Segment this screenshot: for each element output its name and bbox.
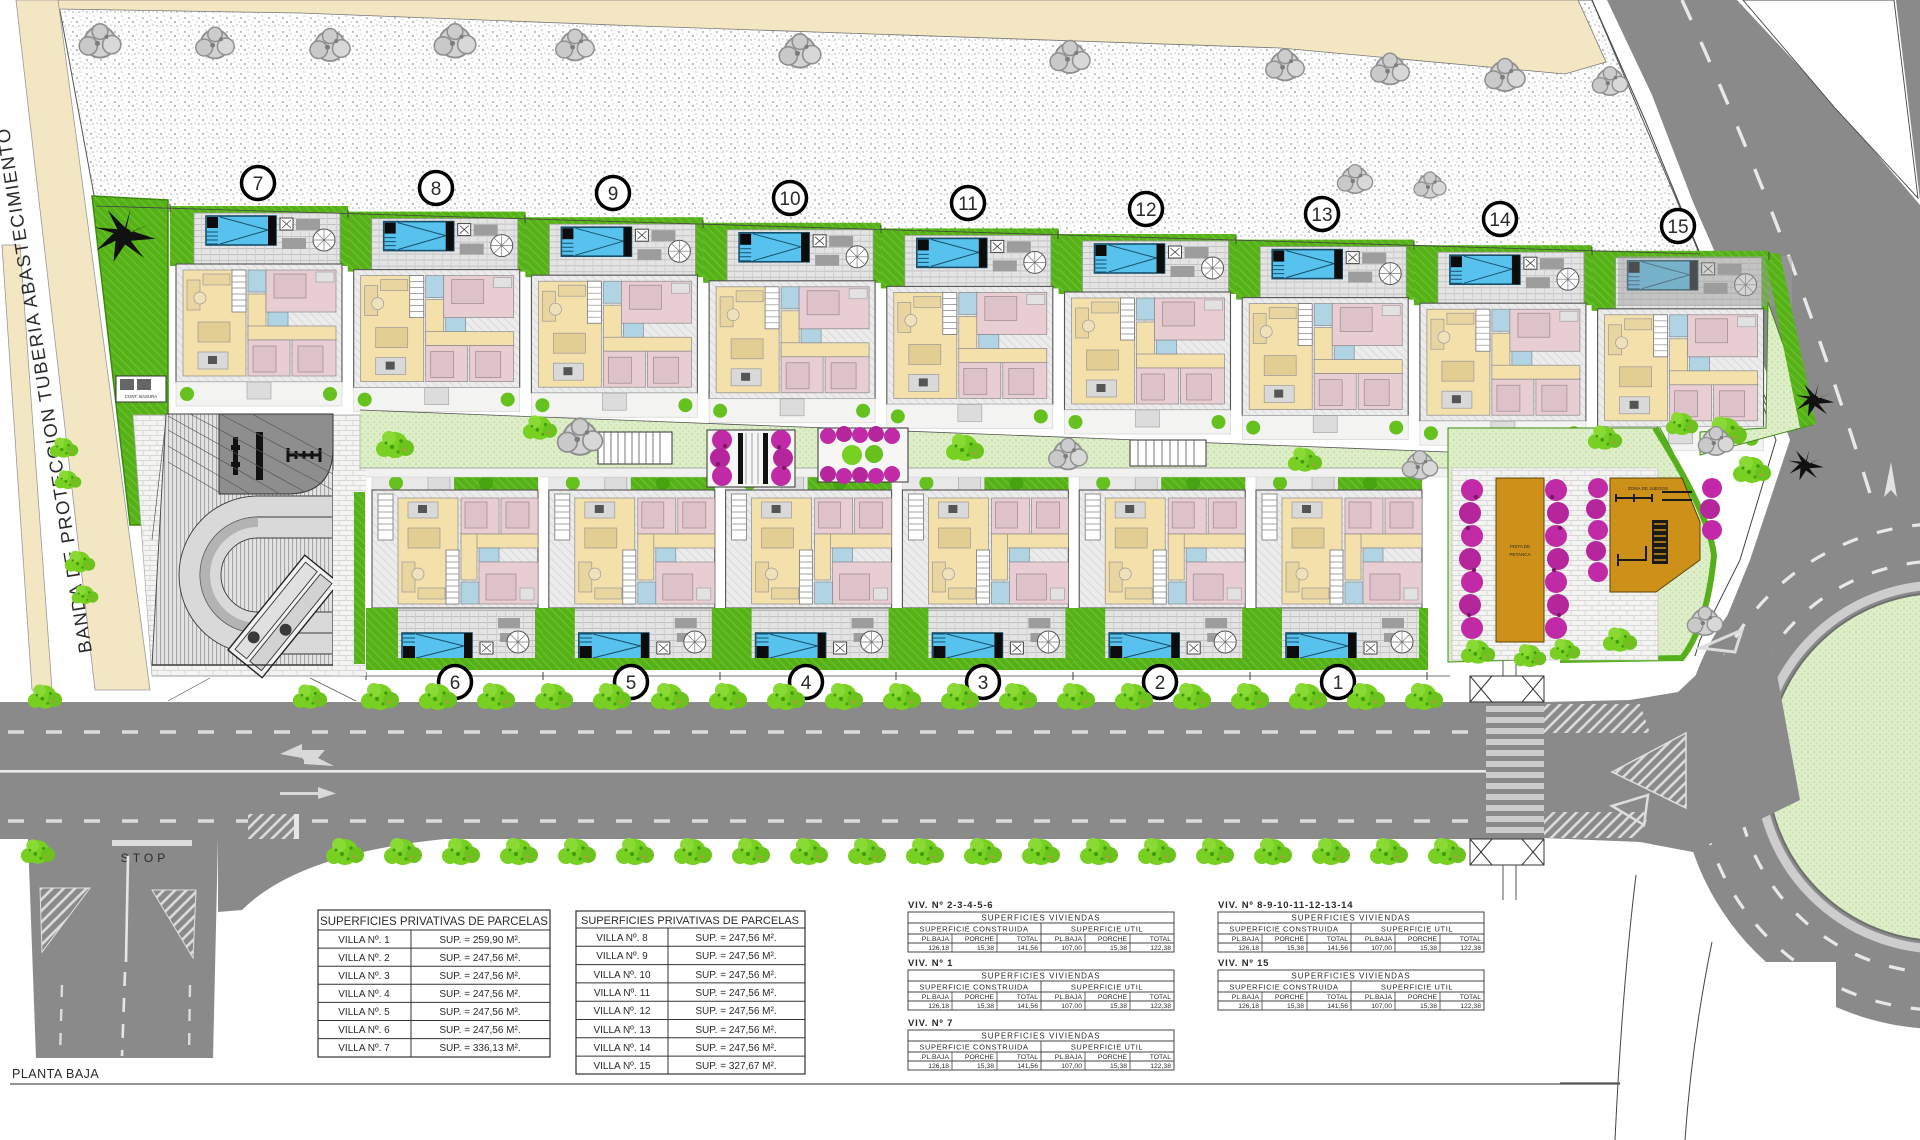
- svg-text:SUP. = 247,56 M².: SUP. = 247,56 M².: [439, 1025, 520, 1036]
- svg-text:10: 10: [779, 189, 800, 210]
- svg-text:PISTA DE: PISTA DE: [1510, 544, 1530, 549]
- svg-text:12: 12: [1135, 200, 1156, 221]
- svg-text:VILLA Nº. 6: VILLA Nº. 6: [338, 1025, 390, 1036]
- svg-text:VILLA Nº. 1: VILLA Nº. 1: [338, 935, 390, 946]
- svg-text:VILLA Nº. 9: VILLA Nº. 9: [596, 951, 648, 962]
- svg-text:VILLA Nº. 10: VILLA Nº. 10: [593, 970, 650, 981]
- svg-text:VILLA Nº. 2: VILLA Nº. 2: [338, 953, 390, 964]
- svg-text:VIV. Nº 7: VIV. Nº 7: [908, 1018, 953, 1029]
- svg-text:VILLA Nº. 7: VILLA Nº. 7: [338, 1043, 390, 1054]
- svg-text:SUP. = 247,56 M².: SUP. = 247,56 M².: [695, 988, 776, 999]
- svg-text:SUP. = 327,67 M².: SUP. = 327,67 M².: [695, 1061, 776, 1072]
- svg-text:ZONA DE JUEGOS: ZONA DE JUEGOS: [1628, 486, 1668, 491]
- svg-text:VILLA Nº. 13: VILLA Nº. 13: [593, 1025, 650, 1036]
- svg-text:5: 5: [626, 673, 637, 694]
- svg-text:2: 2: [1155, 673, 1166, 694]
- svg-text:SUP. = 336,13 M².: SUP. = 336,13 M².: [439, 1043, 520, 1054]
- svg-text:VILLA Nº. 3: VILLA Nº. 3: [338, 971, 390, 982]
- svg-text:CONT. BASURA: CONT. BASURA: [125, 394, 158, 399]
- svg-text:6: 6: [450, 673, 461, 694]
- svg-text:SUP. = 247,56 M².: SUP. = 247,56 M².: [439, 1007, 520, 1018]
- svg-text:SUP. = 247,56 M².: SUP. = 247,56 M².: [695, 1043, 776, 1054]
- svg-text:VIV. Nº 1: VIV. Nº 1: [908, 958, 953, 969]
- svg-text:SUP. = 259,90 M².: SUP. = 259,90 M².: [439, 935, 520, 946]
- svg-text:VILLA Nº. 4: VILLA Nº. 4: [338, 989, 390, 1000]
- svg-text:VILLA Nº. 8: VILLA Nº. 8: [596, 933, 648, 944]
- svg-text:VILLA Nº. 5: VILLA Nº. 5: [338, 1007, 390, 1018]
- svg-text:11: 11: [958, 194, 978, 215]
- svg-text:VILLA Nº. 12: VILLA Nº. 12: [593, 1006, 650, 1017]
- svg-text:VIV. Nº 2-3-4-5-6: VIV. Nº 2-3-4-5-6: [908, 900, 993, 911]
- svg-text:SUP. = 247,56 M².: SUP. = 247,56 M².: [695, 951, 776, 962]
- svg-text:1: 1: [1333, 673, 1344, 694]
- svg-text:SUP. = 247,56 M².: SUP. = 247,56 M².: [695, 970, 776, 981]
- svg-text:VIV. Nº 8-9-10-11-12-13-14: VIV. Nº 8-9-10-11-12-13-14: [1218, 900, 1353, 911]
- svg-text:SUP. = 247,56 M².: SUP. = 247,56 M².: [439, 989, 520, 1000]
- svg-text:3: 3: [978, 673, 989, 694]
- svg-text:VIV. Nº 15: VIV. Nº 15: [1218, 958, 1269, 969]
- svg-text:SUPERFICIES PRIVATIVAS DE PARC: SUPERFICIES PRIVATIVAS DE PARCELAS: [320, 916, 548, 928]
- svg-text:PETANCA: PETANCA: [1509, 552, 1531, 557]
- svg-text:SUP. = 247,56 M².: SUP. = 247,56 M².: [695, 1025, 776, 1036]
- svg-text:SUP. = 247,56 M².: SUP. = 247,56 M².: [695, 933, 776, 944]
- svg-text:SUP. = 247,56 M².: SUP. = 247,56 M².: [439, 953, 520, 964]
- svg-text:VILLA Nº. 14: VILLA Nº. 14: [593, 1043, 650, 1054]
- svg-text:13: 13: [1311, 205, 1332, 226]
- svg-text:VILLA Nº. 11: VILLA Nº. 11: [594, 988, 651, 999]
- svg-text:VILLA Nº. 15: VILLA Nº. 15: [593, 1061, 650, 1072]
- svg-text:9: 9: [608, 184, 619, 205]
- svg-text:14: 14: [1489, 210, 1511, 231]
- svg-text:SUPERFICIES PRIVATIVAS DE PARC: SUPERFICIES PRIVATIVAS DE PARCELAS: [581, 915, 799, 927]
- svg-text:7: 7: [253, 174, 264, 195]
- svg-text:4: 4: [801, 673, 812, 694]
- svg-text:8: 8: [431, 179, 442, 200]
- svg-text:PLANTA BAJA: PLANTA BAJA: [12, 1067, 99, 1081]
- svg-text:SUP. = 247,56 M².: SUP. = 247,56 M².: [439, 971, 520, 982]
- svg-text:15: 15: [1667, 217, 1688, 238]
- svg-text:SUP. = 247,56 M².: SUP. = 247,56 M².: [695, 1006, 776, 1017]
